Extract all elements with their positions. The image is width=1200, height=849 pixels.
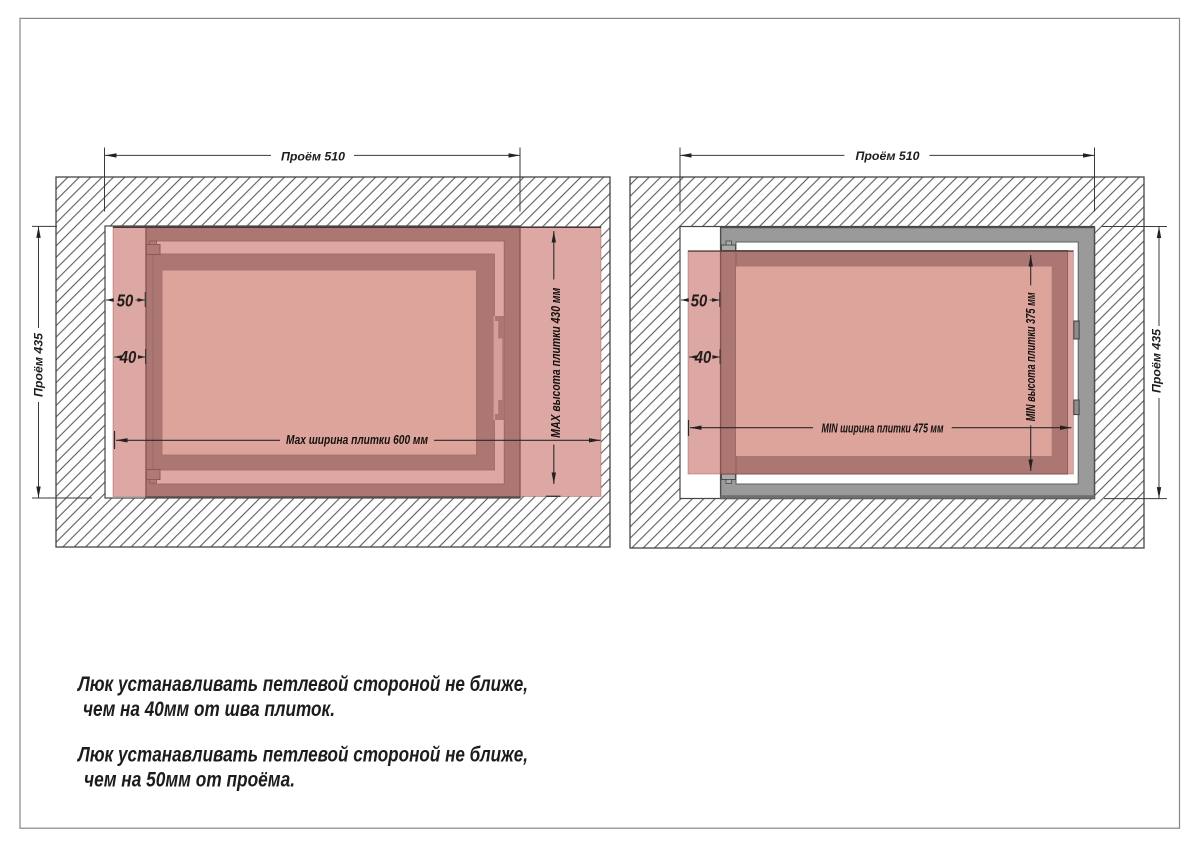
svg-text:50: 50 xyxy=(117,291,134,311)
svg-text:чем на 50мм от проёма.: чем на 50мм от проёма. xyxy=(84,768,295,792)
svg-text:МАХ высота плитки 430 мм: МАХ высота плитки 430 мм xyxy=(548,287,563,437)
svg-text:Мах ширина плитки 600 мм: Мах ширина плитки 600 мм xyxy=(286,432,428,447)
svg-text:чем на 40мм от шва плиток.: чем на 40мм от шва плиток. xyxy=(83,697,335,721)
svg-text:MIN высота плитки 375 мм: MIN высота плитки 375 мм xyxy=(1023,292,1038,421)
svg-text:40: 40 xyxy=(119,347,137,367)
svg-text:Проём 510: Проём 510 xyxy=(281,149,345,163)
svg-text:Люк устанавливать петлевой сто: Люк устанавливать петлевой стороной не б… xyxy=(76,743,528,767)
svg-text:Люк устанавливать петлевой сто: Люк устанавливать петлевой стороной не б… xyxy=(76,672,528,696)
svg-text:40: 40 xyxy=(694,347,712,367)
svg-text:MIN ширина плитки 475 мм: MIN ширина плитки 475 мм xyxy=(822,421,944,436)
svg-text:Проём 435: Проём 435 xyxy=(32,333,46,397)
svg-text:Проём 510: Проём 510 xyxy=(856,149,920,163)
svg-text:Проём 435: Проём 435 xyxy=(1150,329,1164,393)
svg-text:50: 50 xyxy=(691,291,708,311)
